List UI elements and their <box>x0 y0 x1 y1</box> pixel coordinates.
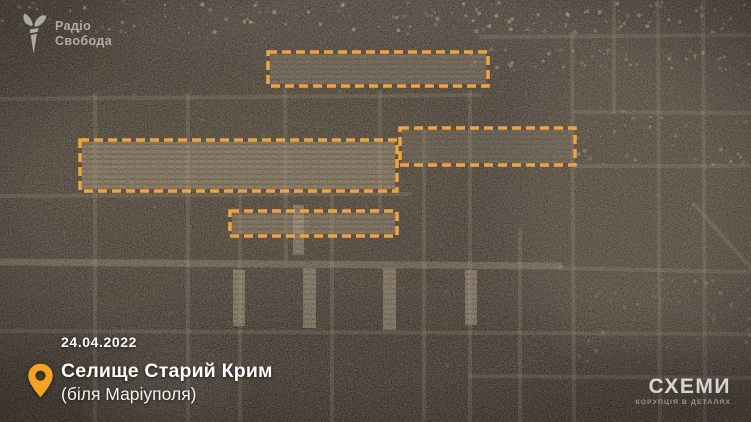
caption-date: 24.04.2022 <box>61 334 137 350</box>
location-pin-icon <box>27 363 54 398</box>
highlight-box-fill <box>270 54 486 84</box>
radio-svoboda-line1: Радіо <box>55 19 112 34</box>
radio-svoboda-logo: Радіо Свобода <box>19 13 112 55</box>
torch-icon <box>19 13 49 55</box>
schemes-watermark: СХЕМИ КОРУПЦІЯ В ДЕТАЛЯХ <box>636 376 732 406</box>
highlight-box-fill <box>402 130 573 163</box>
highlight-box-fill <box>232 213 395 234</box>
radio-svoboda-line2: Свобода <box>55 34 112 49</box>
location-title: Селище Старий Крим <box>61 360 273 383</box>
location-subtitle: (біля Маріуполя) <box>61 384 197 405</box>
satellite-image: Радіо Свобода 24.04.2022 Селище Старий К… <box>0 0 751 422</box>
highlight-box-fill <box>82 142 395 189</box>
satellite-backdrop <box>0 0 751 422</box>
schemes-title: СХЕМИ <box>636 376 732 397</box>
schemes-subtitle: КОРУПЦІЯ В ДЕТАЛЯХ <box>636 399 732 406</box>
